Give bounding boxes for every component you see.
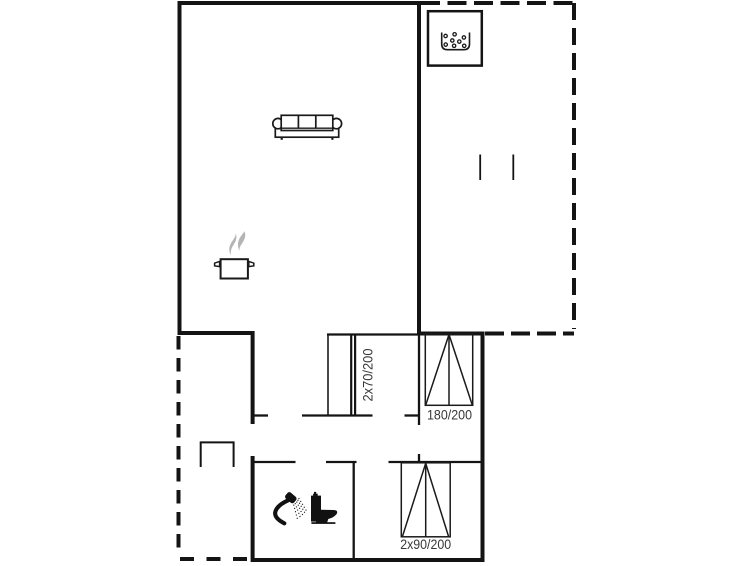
svg-text:180/200: 180/200 (427, 408, 472, 423)
svg-text:2x90/200: 2x90/200 (400, 537, 451, 552)
svg-text:2x70/200: 2x70/200 (361, 348, 376, 401)
